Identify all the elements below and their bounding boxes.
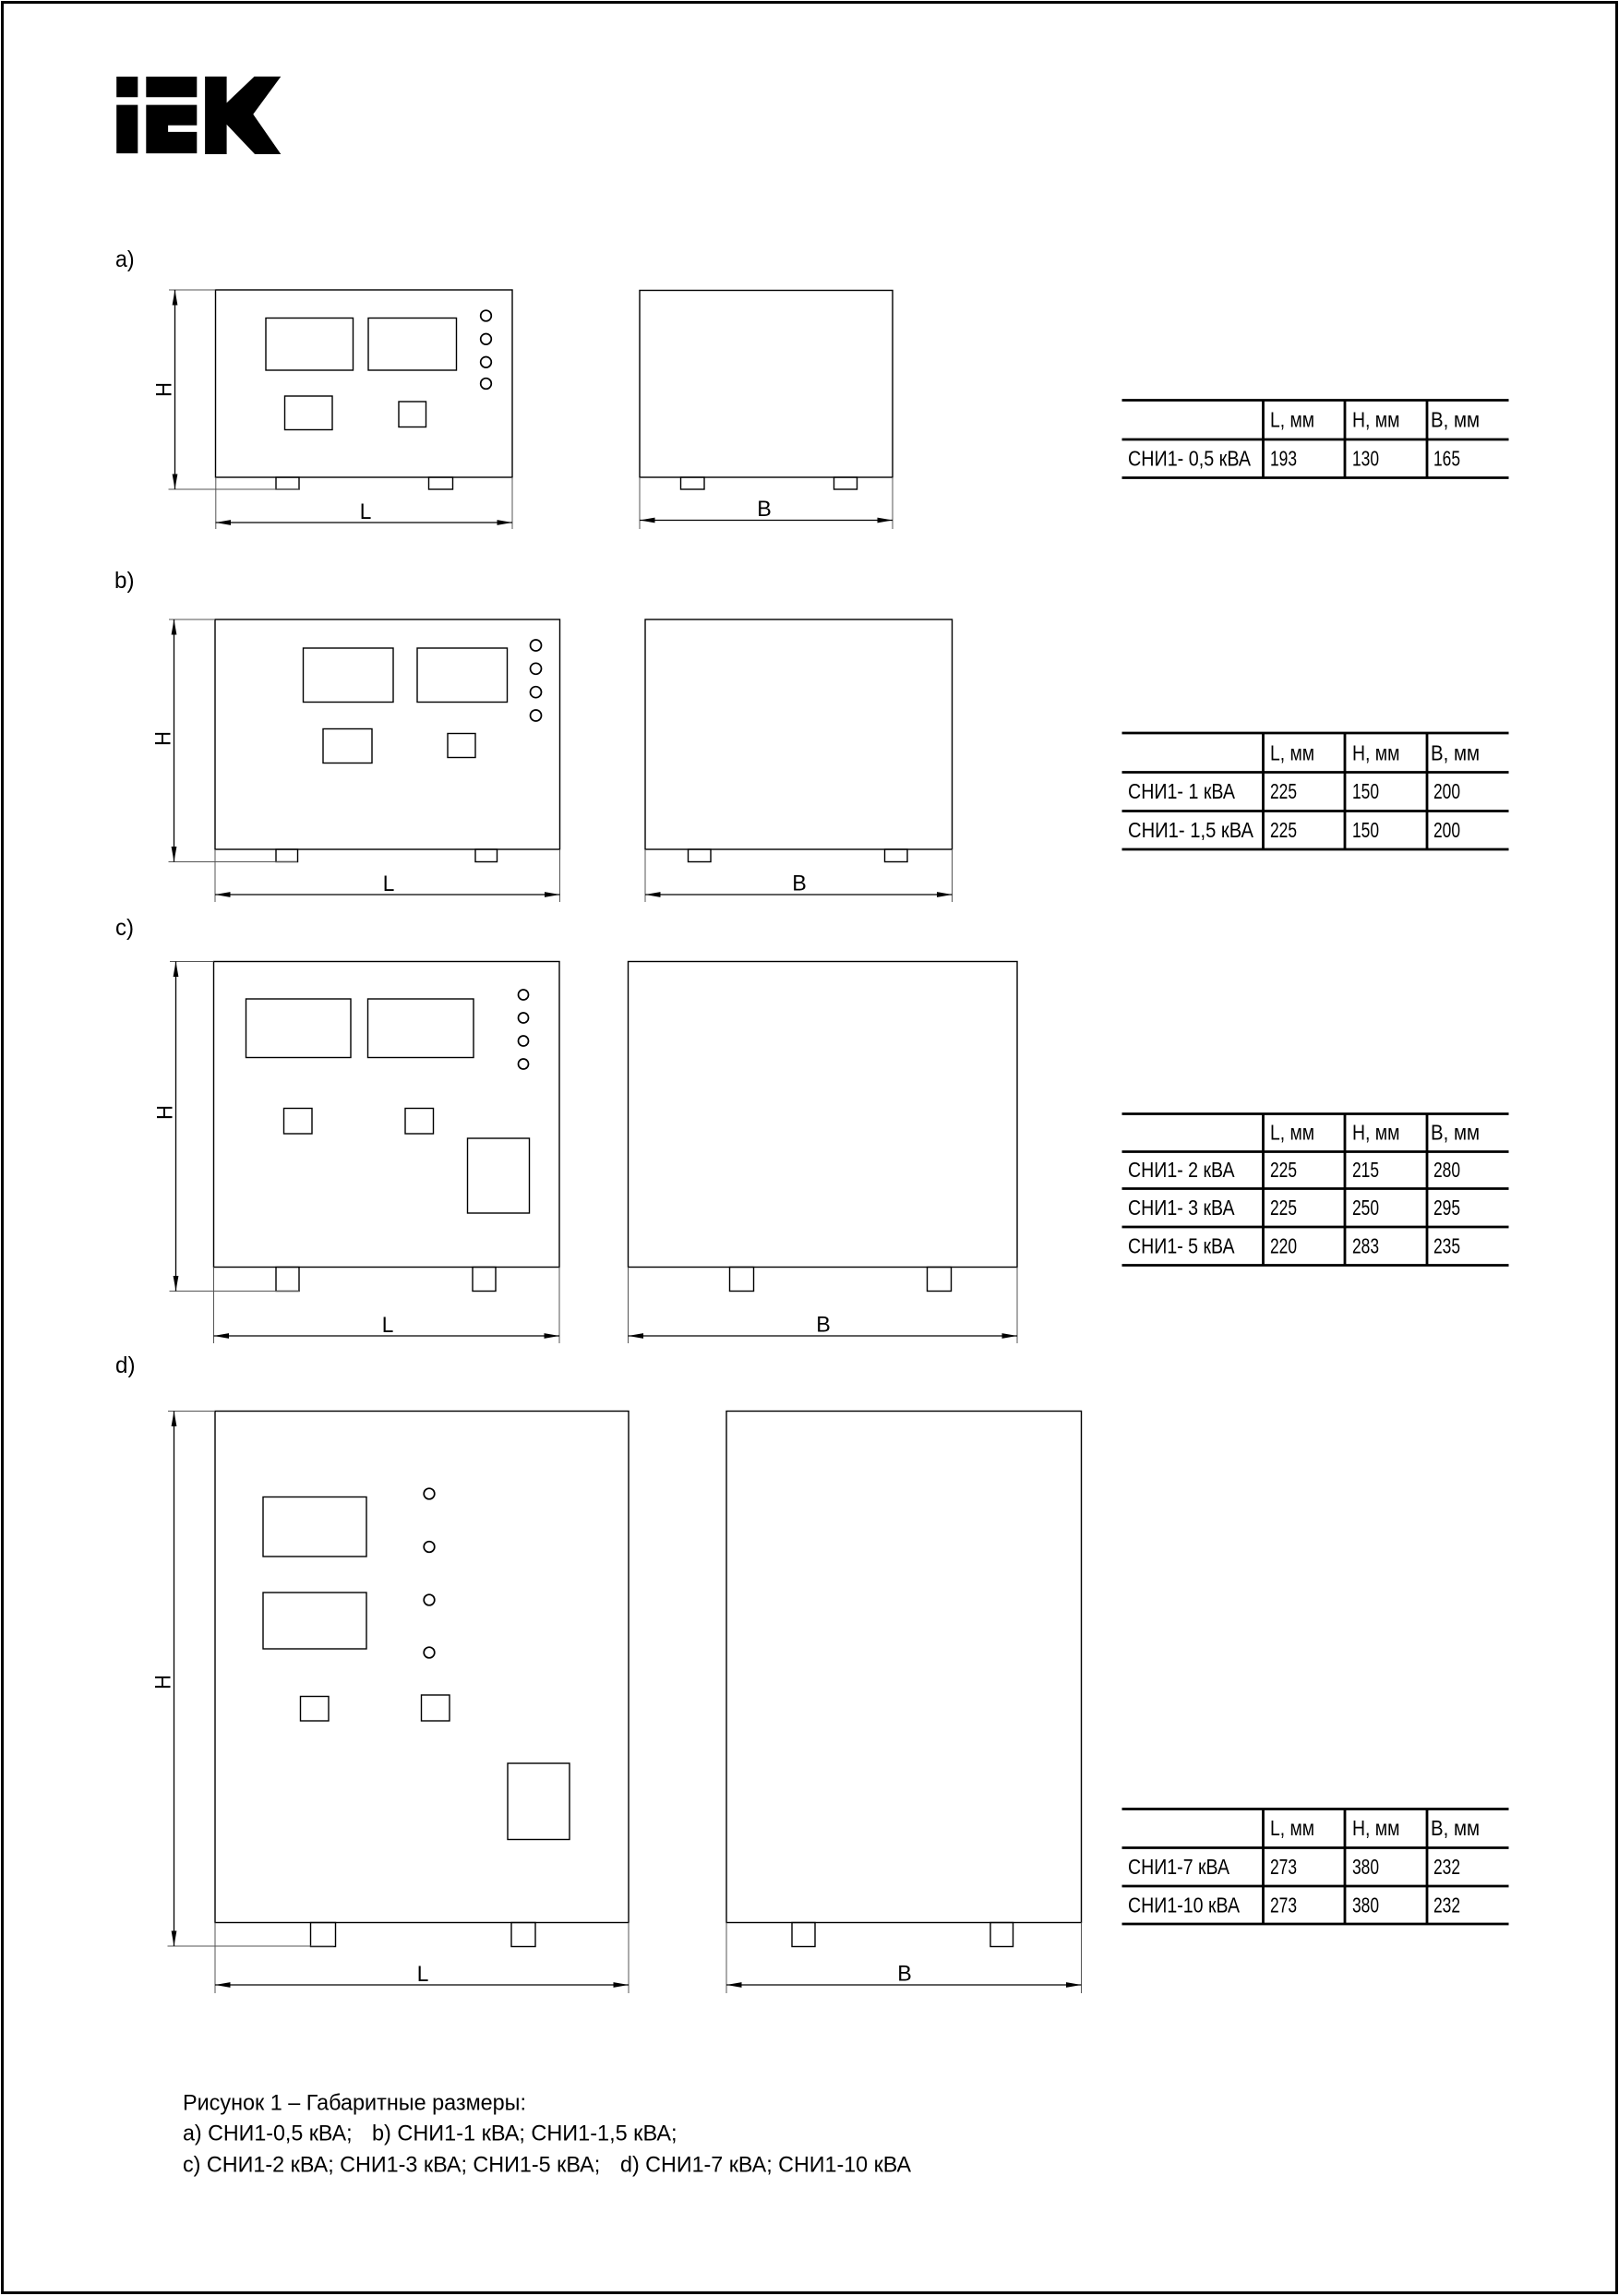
svg-text:225: 225 [1270, 1158, 1297, 1182]
svg-text:c): c) [115, 915, 134, 941]
svg-text:B: B [757, 497, 772, 522]
svg-text:H, мм: H, мм [1352, 407, 1400, 431]
svg-text:280: 280 [1433, 1158, 1460, 1182]
svg-text:СНИ1- 1,5 кВА: СНИ1- 1,5 кВА [1128, 818, 1254, 842]
svg-text:L: L [417, 1962, 429, 1987]
svg-text:232: 232 [1433, 1893, 1460, 1917]
svg-text:L: L [360, 499, 372, 524]
svg-text:H: H [151, 1675, 176, 1689]
svg-text:273: 273 [1270, 1855, 1297, 1879]
svg-text:H: H [152, 382, 177, 397]
svg-text:225: 225 [1270, 818, 1297, 842]
svg-text:232: 232 [1433, 1855, 1460, 1879]
svg-text:СНИ1- 1 кВА: СНИ1- 1 кВА [1128, 779, 1236, 803]
svg-text:150: 150 [1352, 779, 1379, 803]
svg-text:СНИ1-10 кВА: СНИ1-10 кВА [1128, 1893, 1241, 1917]
svg-text:225: 225 [1270, 1196, 1297, 1220]
svg-text:B: B [792, 872, 807, 896]
svg-text:L, мм: L, мм [1270, 1121, 1314, 1145]
svg-text:b): b) [114, 568, 135, 594]
svg-text:130: 130 [1352, 446, 1379, 470]
svg-text:380: 380 [1352, 1855, 1379, 1879]
svg-text:СНИ1- 2 кВА: СНИ1- 2 кВА [1128, 1158, 1235, 1182]
svg-text:L, мм: L, мм [1270, 740, 1314, 764]
svg-text:B: B [816, 1313, 831, 1338]
svg-text:СНИ1-7 кВА: СНИ1-7 кВА [1128, 1855, 1230, 1879]
svg-text:H: H [151, 731, 176, 746]
svg-text:Рисунок 1 – Габаритные размеры: Рисунок 1 – Габаритные размеры: [183, 2091, 526, 2116]
svg-text:200: 200 [1433, 779, 1460, 803]
svg-text:295: 295 [1433, 1196, 1460, 1220]
svg-text:L, мм: L, мм [1270, 1816, 1314, 1840]
svg-text:200: 200 [1433, 818, 1460, 842]
svg-text:283: 283 [1352, 1233, 1379, 1257]
svg-text:165: 165 [1433, 446, 1460, 470]
svg-text:H, мм: H, мм [1352, 1816, 1400, 1840]
svg-text:L: L [382, 1313, 394, 1338]
svg-text:d): d) [115, 1352, 136, 1378]
svg-text:H, мм: H, мм [1352, 1121, 1400, 1145]
svg-text:B, мм: B, мм [1431, 1816, 1480, 1840]
svg-text:L, мм: L, мм [1270, 407, 1314, 431]
svg-text:380: 380 [1352, 1893, 1379, 1917]
svg-text:150: 150 [1352, 818, 1379, 842]
svg-text:B, мм: B, мм [1431, 1121, 1480, 1145]
svg-text:235: 235 [1433, 1233, 1460, 1257]
svg-text:СНИ1- 3 кВА: СНИ1- 3 кВА [1128, 1196, 1235, 1220]
svg-text:СНИ1- 5 кВА: СНИ1- 5 кВА [1128, 1233, 1235, 1257]
svg-text:B, мм: B, мм [1431, 740, 1480, 764]
svg-text:L: L [383, 872, 395, 896]
svg-text:220: 220 [1270, 1233, 1297, 1257]
svg-text:H: H [153, 1105, 178, 1120]
svg-text:СНИ1- 0,5 кВА: СНИ1- 0,5 кВА [1128, 446, 1252, 470]
svg-text:215: 215 [1352, 1158, 1379, 1182]
svg-text:B: B [897, 1962, 912, 1987]
svg-text:B, мм: B, мм [1431, 407, 1480, 431]
svg-text:H, мм: H, мм [1352, 740, 1400, 764]
svg-text:c) СНИ1-2 кВА; СНИ1-3 кВА; СНИ: c) СНИ1-2 кВА; СНИ1-3 кВА; СНИ1-5 кВА;d)… [183, 2153, 911, 2178]
svg-text:a): a) [115, 246, 135, 272]
svg-text:250: 250 [1352, 1196, 1379, 1220]
svg-text:273: 273 [1270, 1893, 1297, 1917]
svg-text:225: 225 [1270, 779, 1297, 803]
svg-text:a) СНИ1-0,5 кВА;b) СНИ1-1 кВА;: a) СНИ1-0,5 кВА;b) СНИ1-1 кВА; СНИ1-1,5 … [183, 2122, 678, 2146]
svg-text:193: 193 [1270, 446, 1297, 470]
